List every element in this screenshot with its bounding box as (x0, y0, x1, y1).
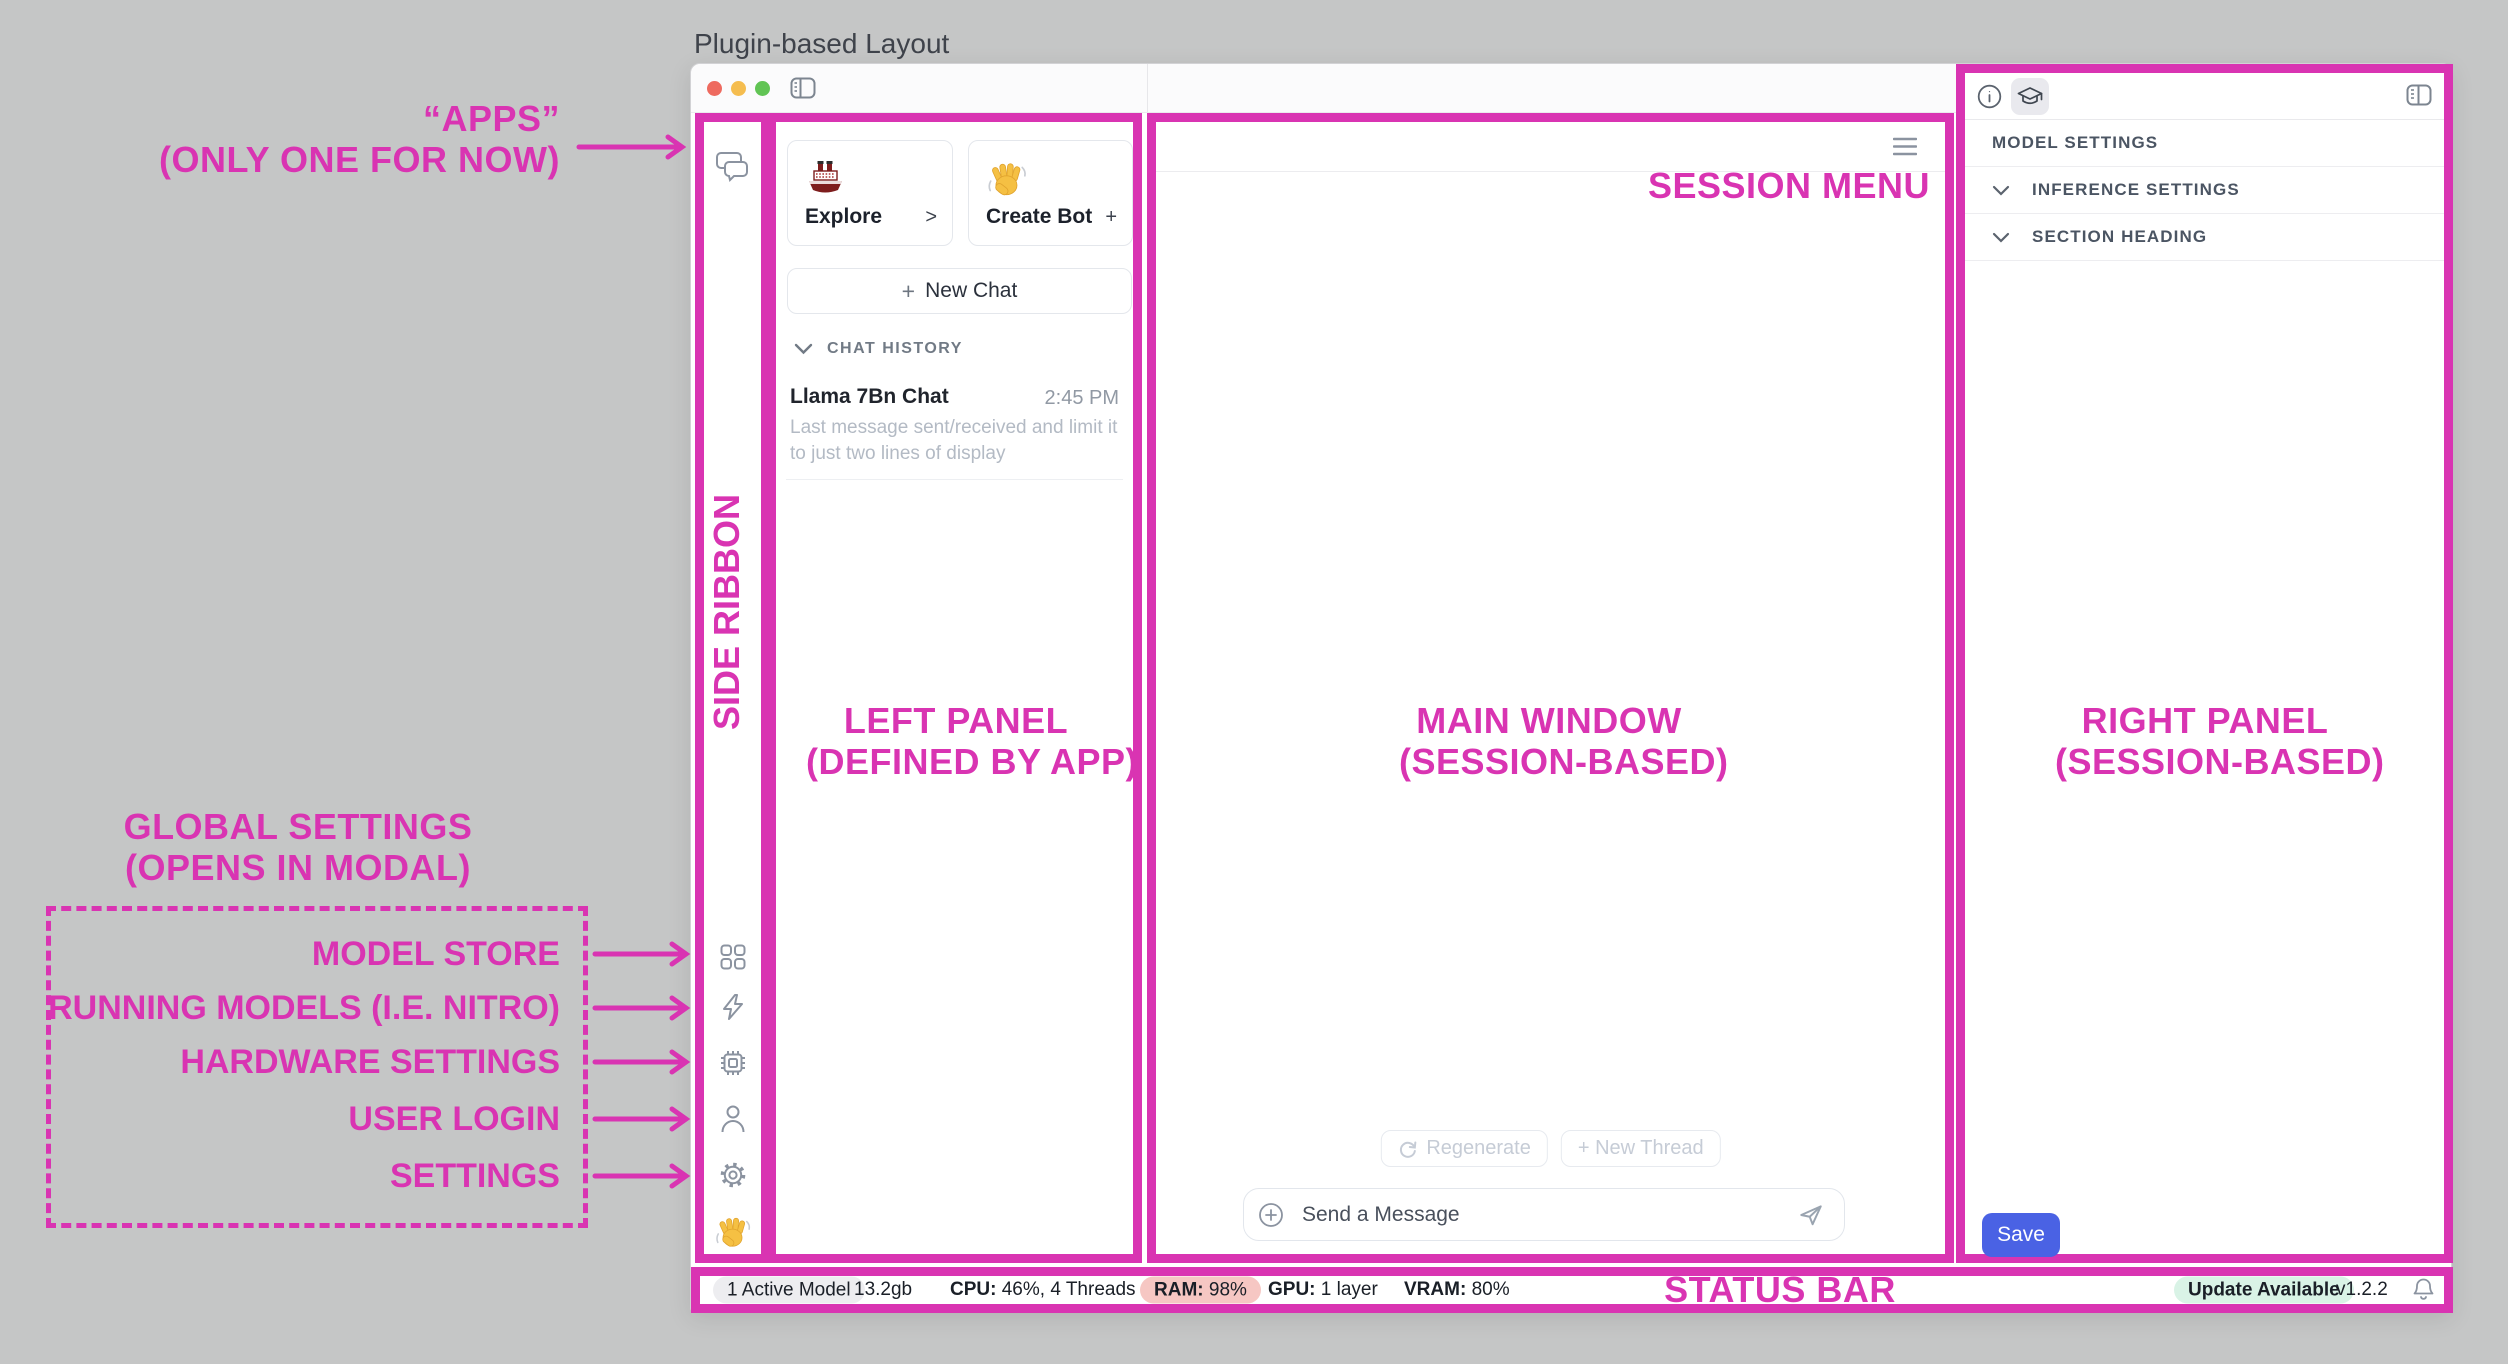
section-model-settings: MODEL SETTINGS (1965, 120, 2444, 167)
right-panel-annotation: RIGHT PANEL (SESSION-BASED) (2055, 700, 2355, 782)
section-inference-settings[interactable]: INFERENCE SETTINGS (1965, 167, 2444, 214)
inference-settings-label: INFERENCE SETTINGS (2032, 180, 2240, 200)
save-button[interactable]: Save (1982, 1213, 2060, 1257)
app-window: Explore > (690, 63, 2452, 1312)
list-divider (786, 479, 1123, 480)
right-panel-toolbar (1965, 73, 2444, 120)
status-bar: 1 Active Model 13.2gb CPU: 46%, 4 Thread… (691, 1267, 2453, 1313)
apps-annotation-line2: (ONLY ONE FOR NOW) (159, 139, 560, 180)
session-menu-icon[interactable] (1893, 137, 1917, 156)
gpu-label: GPU: (1268, 1279, 1316, 1300)
settings-gear-icon[interactable] (719, 1161, 747, 1189)
plus-icon: + (902, 278, 915, 305)
explore-card-footer: Explore > (805, 205, 937, 229)
minimize-window-button[interactable] (731, 81, 746, 96)
left-panel-annotation-line1: LEFT PANEL (806, 700, 1106, 741)
explore-card-label: Explore (805, 205, 882, 229)
explore-card-chevron[interactable]: > (925, 206, 937, 229)
active-model-label: 1 Active Model (727, 1279, 851, 1301)
new-thread-label: + New Thread (1578, 1137, 1704, 1160)
vram-label: VRAM: (1404, 1279, 1466, 1300)
wave-emoji-icon[interactable] (714, 1212, 752, 1252)
running-models-arrow-icon (592, 995, 692, 1021)
new-chat-button[interactable]: + New Chat (787, 268, 1132, 314)
annotation-canvas: { "page": { "title": "Plugin-based Layou… (0, 0, 2508, 1364)
create-bot-card-footer: Create Bot + (986, 205, 1117, 229)
update-available-label: Update Available (2188, 1279, 2340, 1301)
info-icon[interactable] (1977, 84, 2002, 109)
maximize-window-button[interactable] (755, 81, 770, 96)
cpu-value: 46%, 4 Threads (1002, 1279, 1136, 1300)
model-store-icon[interactable] (720, 944, 746, 970)
create-bot-card[interactable]: Create Bot + (968, 140, 1133, 246)
status-bar-annotation: STATUS BAR (1660, 1269, 1900, 1311)
settings-arrow-icon (592, 1163, 692, 1189)
active-model-badge[interactable]: 1 Active Model (713, 1277, 865, 1304)
hardware-settings-arrow-icon (592, 1049, 692, 1075)
section-heading-label: SECTION HEADING (2032, 227, 2207, 247)
thread-actions-row: Regenerate + New Thread (1380, 1130, 1720, 1167)
ram-value: 98% (1209, 1279, 1247, 1301)
settings-annotation: SETTINGS (390, 1155, 560, 1197)
gpu-value: 1 layer (1321, 1279, 1378, 1300)
new-chat-label: New Chat (925, 279, 1017, 303)
session-menu-annotation: SESSION MENU (1648, 165, 1930, 206)
explore-card[interactable]: Explore > (787, 140, 953, 246)
apps-arrow-icon (576, 134, 688, 160)
wave-emoji-icon (986, 157, 1028, 201)
chat-item-preview: Last message sent/received and limit it … (790, 415, 1122, 467)
running-models-annotation: RUNNING MODELS (I.E. NITRO) (48, 987, 560, 1029)
create-bot-card-label: Create Bot (986, 205, 1092, 229)
main-window-panel: Regenerate + New Thread Send a Message (1147, 113, 1954, 1263)
model-store-arrow-icon (592, 941, 692, 967)
user-login-icon[interactable] (720, 1104, 746, 1134)
ram-label: RAM: (1154, 1279, 1204, 1301)
global-settings-annotation: GLOBAL SETTINGS (OPENS IN MODAL) (123, 806, 473, 888)
chevron-down-icon[interactable] (1992, 185, 2010, 196)
side-ribbon-annotation: SIDE RIBBON (706, 494, 748, 730)
toggle-sidebar-icon[interactable] (790, 77, 816, 99)
right-panel-annotation-line2: (SESSION-BASED) (2055, 741, 2355, 782)
apps-annotation: “APPS” (ONLY ONE FOR NOW) (159, 98, 560, 180)
message-composer[interactable]: Send a Message (1243, 1188, 1845, 1241)
gpu-status: GPU: 1 layer (1268, 1279, 1378, 1301)
notifications-bell-icon[interactable] (2412, 1278, 2435, 1303)
hardware-settings-icon[interactable] (719, 1049, 747, 1077)
global-settings-annotation-line2: (OPENS IN MODAL) (123, 847, 473, 888)
chat-history-header[interactable]: CHAT HISTORY (794, 340, 963, 358)
app-version: v1.2.2 (2336, 1279, 2388, 1301)
left-panel-annotation: LEFT PANEL (DEFINED BY APP) (806, 700, 1106, 782)
chat-history-title: CHAT HISTORY (827, 340, 963, 358)
memory-usage: 13.2gb (854, 1279, 912, 1301)
close-window-button[interactable] (707, 81, 722, 96)
cpu-status: CPU: 46%, 4 Threads (950, 1279, 1136, 1301)
chat-item-time: 2:45 PM (1045, 387, 1119, 410)
send-message-icon[interactable] (1798, 1202, 1824, 1228)
vram-status: VRAM: 80% (1404, 1279, 1510, 1301)
user-login-annotation: USER LOGIN (348, 1098, 560, 1140)
main-window-annotation-line2: (SESSION-BASED) (1399, 741, 1699, 782)
regenerate-label: Regenerate (1426, 1137, 1531, 1160)
section-heading[interactable]: SECTION HEADING (1965, 214, 2444, 261)
model-settings-tab[interactable] (2011, 78, 2049, 115)
ram-badge: RAM: 98% (1140, 1277, 1261, 1304)
chat-item-title[interactable]: Llama 7Bn Chat (790, 385, 949, 409)
toggle-right-panel-icon[interactable] (2406, 84, 2432, 106)
update-available-badge[interactable]: Update Available (2174, 1277, 2354, 1304)
cpu-label: CPU: (950, 1279, 996, 1300)
page-title: Plugin-based Layout (694, 28, 949, 60)
model-settings-label: MODEL SETTINGS (1992, 133, 2158, 153)
composer-placeholder[interactable]: Send a Message (1302, 1203, 1460, 1227)
titlebar-divider (1147, 64, 1148, 112)
ship-emoji-icon (805, 159, 845, 199)
left-panel: Explore > (767, 113, 1142, 1263)
chat-app-icon[interactable] (715, 150, 751, 182)
apps-annotation-line1: “APPS” (159, 98, 560, 139)
create-bot-plus[interactable]: + (1105, 206, 1117, 229)
vram-value: 80% (1472, 1279, 1510, 1300)
right-panel-annotation-line1: RIGHT PANEL (2055, 700, 2355, 741)
left-panel-annotation-line2: (DEFINED BY APP) (806, 741, 1106, 782)
global-settings-annotation-line1: GLOBAL SETTINGS (123, 806, 473, 847)
hardware-settings-annotation: HARDWARE SETTINGS (180, 1041, 560, 1083)
main-window-annotation-line1: MAIN WINDOW (1399, 700, 1699, 741)
new-thread-button[interactable]: + New Thread (1561, 1130, 1721, 1167)
user-login-arrow-icon (592, 1106, 692, 1132)
chevron-down-icon[interactable] (794, 343, 813, 355)
model-store-annotation: MODEL STORE (312, 933, 560, 975)
regenerate-button[interactable]: Regenerate (1380, 1130, 1548, 1167)
main-window-annotation: MAIN WINDOW (SESSION-BASED) (1399, 700, 1699, 782)
chevron-down-icon[interactable] (1992, 232, 2010, 243)
running-models-icon[interactable] (720, 993, 746, 1021)
attach-plus-icon[interactable] (1258, 1202, 1284, 1228)
graduation-cap-icon (2017, 86, 2043, 108)
right-panel: MODEL SETTINGS INFERENCE SETTINGS SECTIO… (1956, 64, 2453, 1263)
